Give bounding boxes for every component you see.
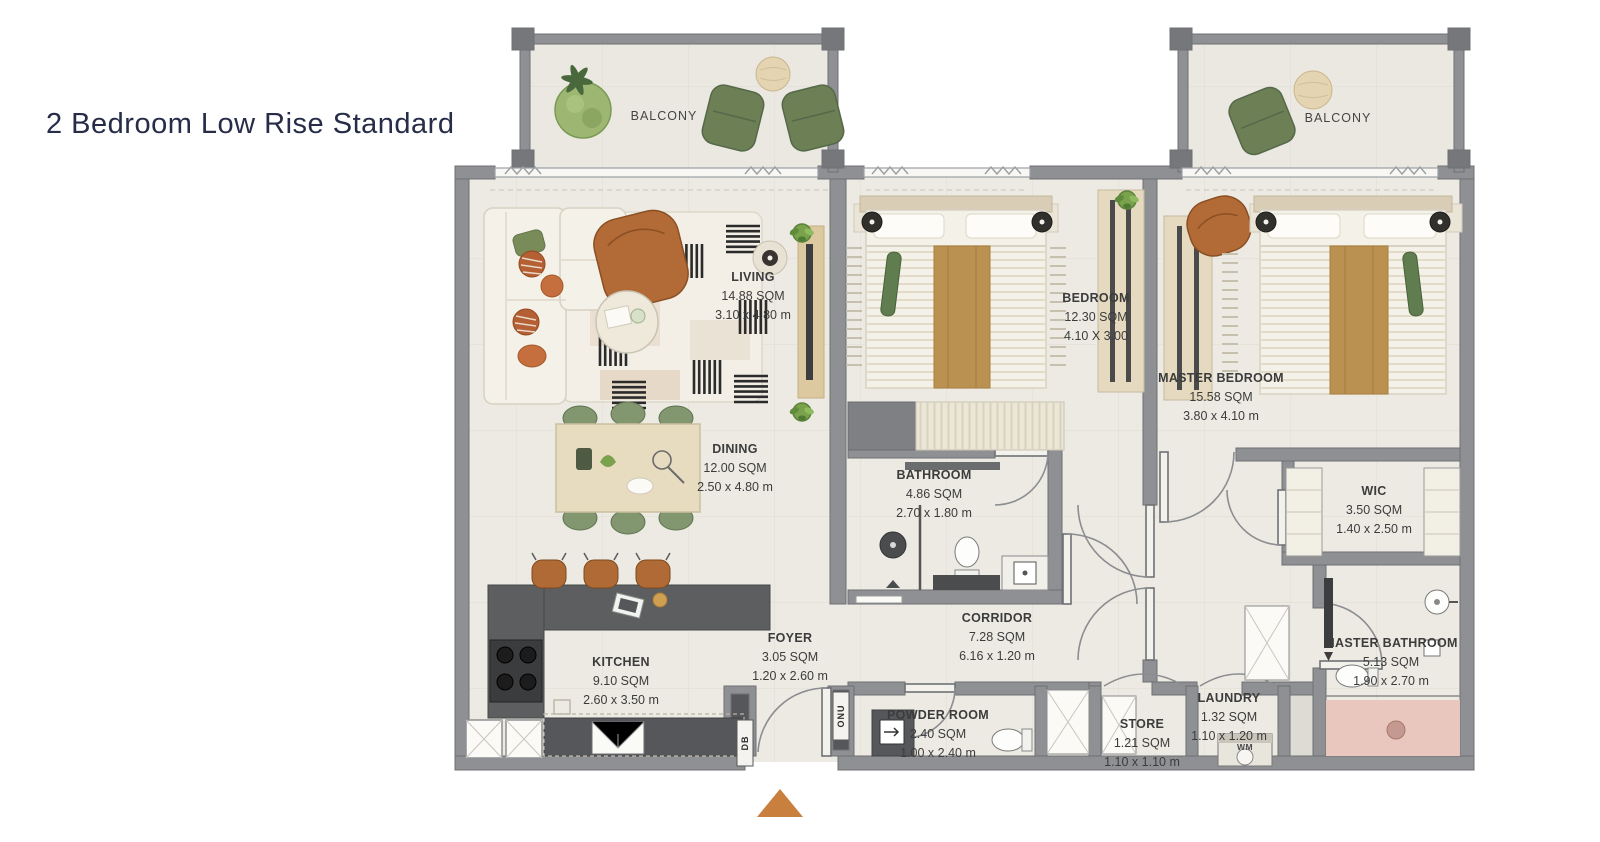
bar-stool [532,560,566,588]
entry-door-leaf [822,688,831,756]
toilet-icon [992,729,1024,751]
bed-runner [1330,246,1388,394]
toilet-icon [955,537,979,567]
bar-stool [584,560,618,588]
bar-stool [636,560,670,588]
balcony-table [756,57,790,91]
room-label-store: STORE1.21 SQM1.10 x 1.10 m [1104,715,1180,771]
balcony-right-label: BALCONY [1305,111,1372,125]
room-label-dining: DINING12.00 SQM2.50 x 4.80 m [697,440,773,496]
floorplan-drawing [0,0,1600,842]
floorplan-page: 2 Bedroom Low Rise Standard [0,0,1600,842]
room-label-living: LIVING14.88 SQM3.10 x 4.80 m [715,268,791,324]
entry-arrow [757,789,803,817]
room-label-wic: WIC3.50 SQM1.40 x 2.50 m [1336,482,1412,538]
onu-label: ONU [836,705,846,728]
outer-wall-left [455,166,469,770]
room-label-foyer: FOYER3.05 SQM1.20 x 2.60 m [752,629,828,685]
dresser [848,402,916,450]
dining-furniture [556,402,700,534]
room-label-bedroom: BEDROOM12.30 SQM4.10 X 3.00 [1062,289,1129,345]
outer-wall-right [1460,166,1474,770]
wall-bedroom-master [1143,179,1157,505]
bed-bench [916,402,1064,450]
bed-runner [934,246,990,388]
room-label-master-bathroom: MASTER BATHROOM5.13 SQM1.90 x 2.70 m [1324,634,1457,690]
db-label: DB [740,736,750,751]
room-label-laundry: LAUNDRY1.32 SQM1.10 x 1.20 m [1191,689,1267,745]
room-label-kitchen: KITCHEN9.10 SQM2.60 x 3.50 m [583,653,659,709]
drain-icon [1387,721,1405,739]
balcony-left-label: BALCONY [631,109,698,123]
balcony-table [1294,71,1332,109]
room-label-bathroom: BATHROOM4.86 SQM2.70 x 1.80 m [896,466,972,522]
room-label-powder-room: POWDER ROOM2.40 SQM1.00 x 2.40 m [887,706,989,762]
room-label-corridor: CORRIDOR7.28 SQM6.16 x 1.20 m [959,609,1035,665]
bowl [653,593,667,607]
wm-label: WM [1237,742,1253,752]
tv-screen [806,244,813,380]
room-label-master-bedroom: MASTER BEDROOM15.58 SQM3.80 x 4.10 m [1158,369,1284,425]
wall-living-bedroom [830,179,846,604]
wall-master-south [1236,448,1460,461]
